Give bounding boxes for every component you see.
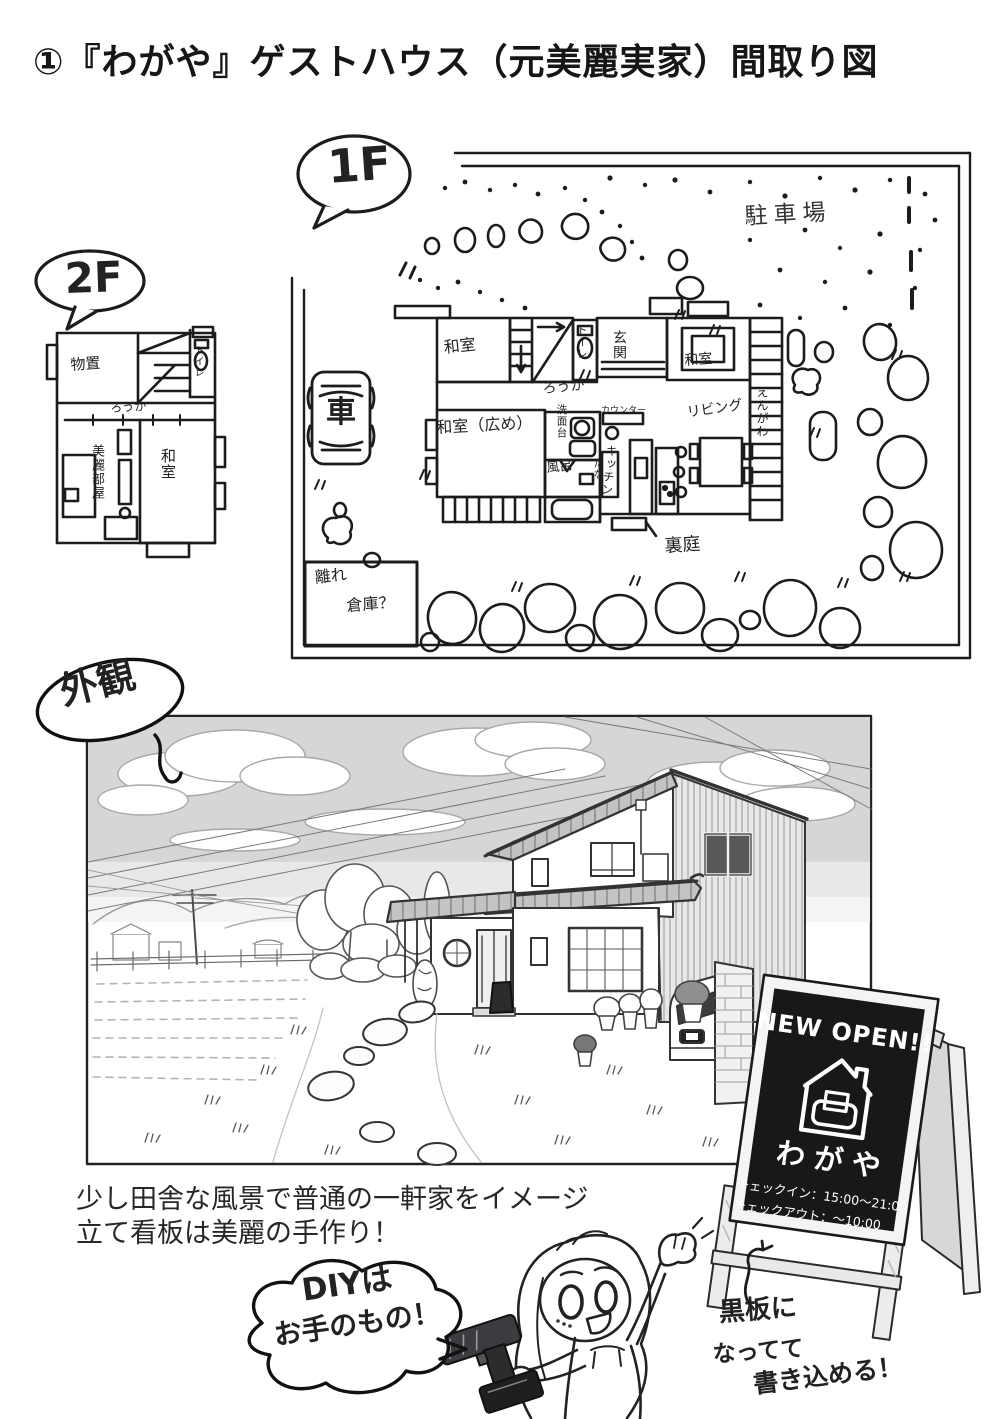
label-rouka-2f: ろうか: [110, 400, 147, 414]
caption-line1: 少し田舎な風景で普通の一軒家をイメージ: [76, 1183, 588, 1217]
label-birei-room: 美麗部屋: [90, 444, 103, 500]
page-title: ①『わがや』ゲストハウス（元美麗実家）間取り図: [33, 33, 878, 85]
label-washitsu-right: 和室: [684, 352, 713, 368]
label-rouka-1f: ろうか: [542, 378, 585, 396]
label-shed-2: 倉庫？: [346, 595, 395, 614]
label-engawa: えんがわ: [756, 386, 768, 438]
floor2-bubble-label: 2F: [64, 256, 123, 300]
garden-stone-path: [400, 180, 703, 311]
label-washitsu-2f: 和室: [160, 448, 175, 480]
label-storage: 物置: [70, 356, 101, 373]
label-car: 車: [326, 398, 356, 428]
label-counter: カウンター: [601, 407, 646, 416]
label-backyard: 裏庭: [664, 535, 701, 555]
label-shed-1: 離れ: [314, 567, 348, 586]
label-washitsu-tl: 和室: [443, 337, 477, 356]
note-line2: なってて: [712, 1338, 804, 1367]
parking-gravel: [607, 175, 937, 327]
label-toilet-1f: トイレ: [576, 324, 587, 360]
label-senmendai: 洗面台: [556, 404, 567, 439]
label-tana: たな: [591, 458, 601, 480]
parking-markers: [909, 178, 912, 308]
label-bath: 風呂: [546, 459, 573, 475]
note-line1: 黒板に: [718, 1295, 798, 1326]
label-genkan: 玄関: [612, 330, 626, 360]
floor1-bubble-label: 1F: [326, 140, 392, 190]
manga-floorplan-page: ①『わがや』ゲストハウス（元美麗実家）間取り図: [0, 0, 1000, 1419]
label-toilet-2f: トイレ: [192, 345, 202, 378]
label-parking: 駐車場: [744, 201, 832, 229]
